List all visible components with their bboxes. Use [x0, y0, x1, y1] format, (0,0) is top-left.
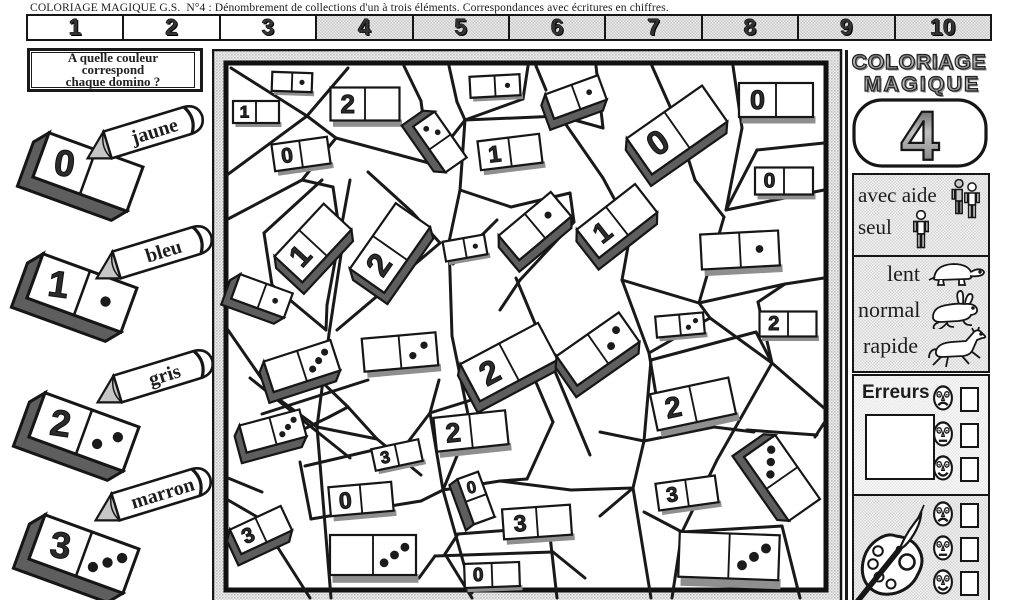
svg-text:2: 2 — [768, 313, 779, 335]
svg-text:3: 3 — [513, 510, 528, 537]
svg-text:2: 2 — [444, 417, 462, 448]
svg-text:COLORIAGE: COLORIAGE — [852, 50, 987, 74]
svg-text:0: 0 — [750, 85, 765, 115]
svg-text:0: 0 — [764, 170, 776, 193]
svg-text:0: 0 — [338, 487, 353, 514]
svg-text:1: 1 — [240, 103, 249, 122]
svg-text:MAGIQUE: MAGIQUE — [864, 72, 981, 96]
svg-text:2: 2 — [341, 89, 355, 119]
svg-text:4: 4 — [901, 97, 940, 172]
svg-text:0: 0 — [473, 565, 484, 586]
